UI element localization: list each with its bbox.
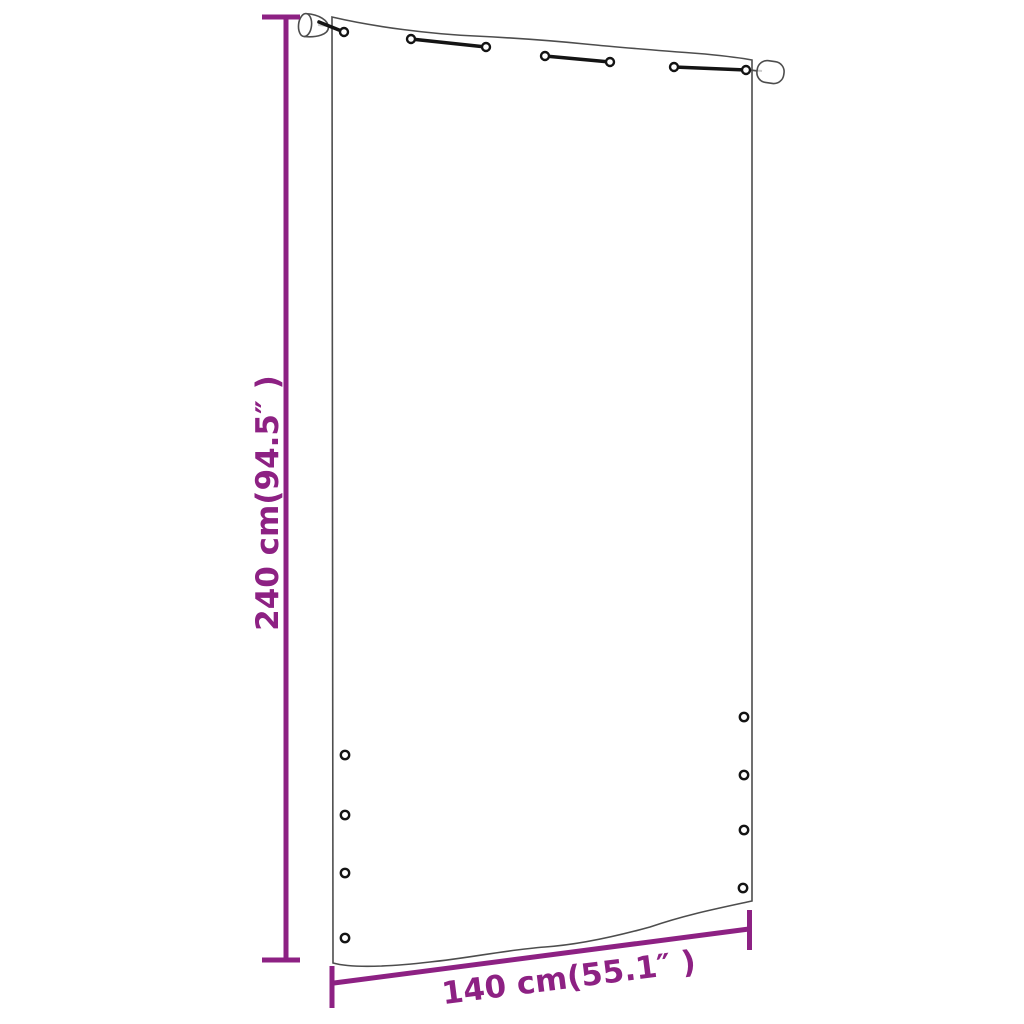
grommet bbox=[740, 771, 748, 779]
grommet bbox=[482, 43, 490, 51]
dimension-diagram: 240 cm(94.5″ ) 140 cm(55.1″ ) bbox=[0, 0, 1024, 1024]
grommet bbox=[670, 63, 678, 71]
rod-right-loop bbox=[756, 59, 786, 85]
grommet bbox=[606, 58, 614, 66]
dimension-diagram-canvas: 240 cm(94.5″ ) 140 cm(55.1″ ) bbox=[0, 0, 1024, 1024]
grommet bbox=[740, 826, 748, 834]
grommet bbox=[341, 934, 349, 942]
grommet bbox=[341, 811, 349, 819]
grommet bbox=[739, 884, 747, 892]
rod-right-loop-icon bbox=[756, 59, 786, 85]
grommet bbox=[541, 52, 549, 60]
grommet bbox=[407, 35, 415, 43]
grommet bbox=[341, 751, 349, 759]
height-dimension-label: 240 cm(94.5″ ) bbox=[250, 375, 286, 631]
screen-panel-outline bbox=[332, 17, 752, 966]
height-dimension: 240 cm(94.5″ ) bbox=[250, 17, 300, 960]
grommet bbox=[341, 869, 349, 877]
grommet bbox=[740, 713, 748, 721]
grommet bbox=[742, 66, 750, 74]
grommet bbox=[340, 28, 348, 36]
